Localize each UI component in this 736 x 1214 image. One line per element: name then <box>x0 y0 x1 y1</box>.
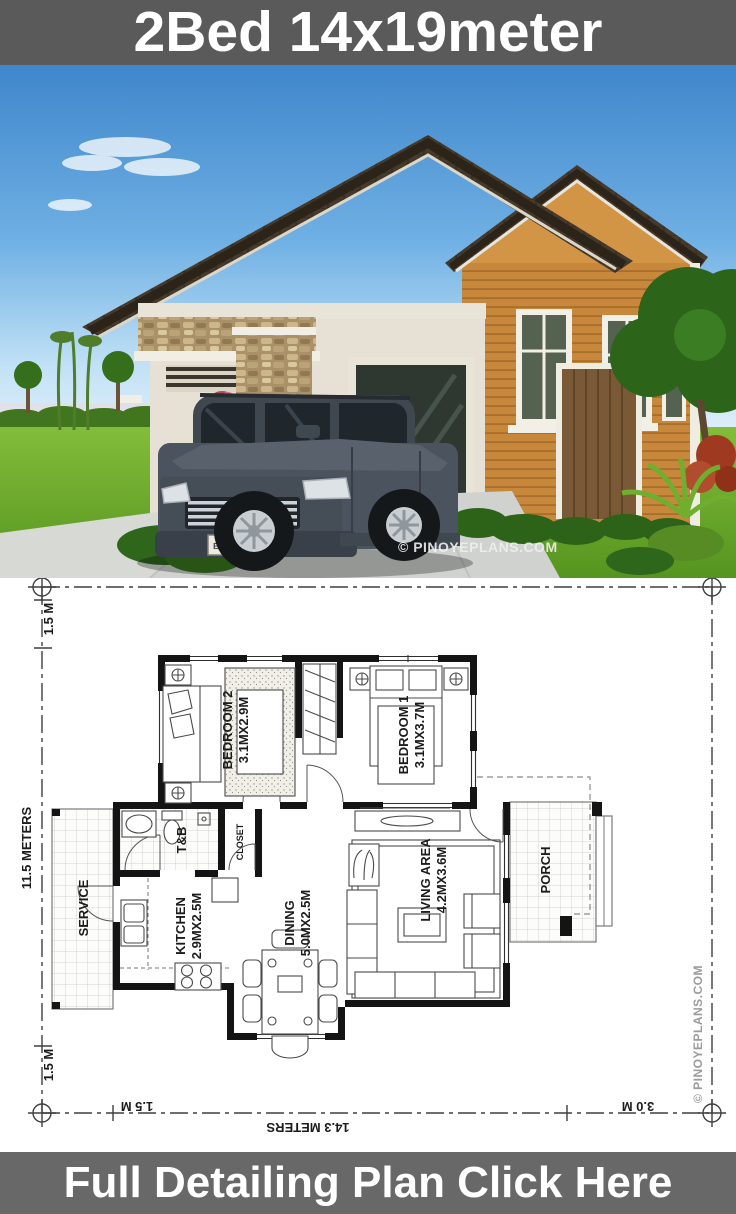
closet-hangers <box>303 664 336 754</box>
dim-bottom-total: 14.3 METERS <box>266 1120 349 1135</box>
cta-label: Full Detailing Plan Click Here <box>64 1161 673 1205</box>
photo-watermark: © PINOYEPLANS.COM <box>398 539 558 555</box>
room-label-porch: PORCH <box>538 847 553 894</box>
page: 2Bed 14x19meter <box>0 0 736 1214</box>
room-dims-dining: 5.0MX2.5M <box>298 890 313 956</box>
room-label-closet: CLOSET <box>235 823 245 860</box>
room-label-living: LIVING AREA <box>418 838 433 922</box>
room-label-bedroom1: BEDROOM 1 <box>396 696 411 775</box>
room-dims-bedroom1: 3.1MX3.7M <box>412 702 427 768</box>
dimension-marker-icon <box>698 578 726 601</box>
front-wheel <box>214 491 294 571</box>
house-render-scene: EVERMOTION <box>0 65 736 578</box>
dim-bottom-right: 3.0 M <box>622 1099 655 1114</box>
dim-top-left: 1.5 M <box>41 603 56 636</box>
room-dims-kitchen: 2.9MX2.5M <box>189 893 204 959</box>
house-render: EVERMOTION <box>0 65 736 578</box>
room-label-tb: T&B <box>174 827 189 854</box>
stove <box>175 963 221 990</box>
plan-watermark: © PINOYEPLANS.COM <box>691 965 705 1103</box>
dim-left: 11.5 METERS <box>19 806 34 889</box>
plant <box>349 844 379 886</box>
room-dims-bedroom2: 3.1MX2.9M <box>236 697 251 763</box>
dim-bottom-offset: 1.5 M <box>121 1099 154 1114</box>
cta-banner[interactable]: Full Detailing Plan Click Here <box>0 1152 736 1214</box>
room-label-service: SERVICE <box>76 879 91 936</box>
title-banner: 2Bed 14x19meter <box>0 0 736 65</box>
page-title: 2Bed 14x19meter <box>134 4 603 61</box>
dimension-marker-icon <box>28 578 56 601</box>
dimension-marker-icon <box>28 1099 56 1127</box>
room-dims-living: 4.2MX3.6M <box>434 847 449 913</box>
headlight <box>303 478 350 499</box>
room-label-kitchen: KITCHEN <box>173 897 188 955</box>
room-label-bedroom2: BEDROOM 2 <box>220 691 235 770</box>
room-label-dining: DINING <box>282 900 297 946</box>
dim-bottom-left: 1.5 M <box>41 1049 56 1082</box>
floor-plan: 1.5 M 11.5 METERS 1.5 M 1.5 M 14.3 METER… <box>0 578 736 1152</box>
floor-plan-drawing: 1.5 M 11.5 METERS 1.5 M 1.5 M 14.3 METER… <box>0 578 736 1152</box>
